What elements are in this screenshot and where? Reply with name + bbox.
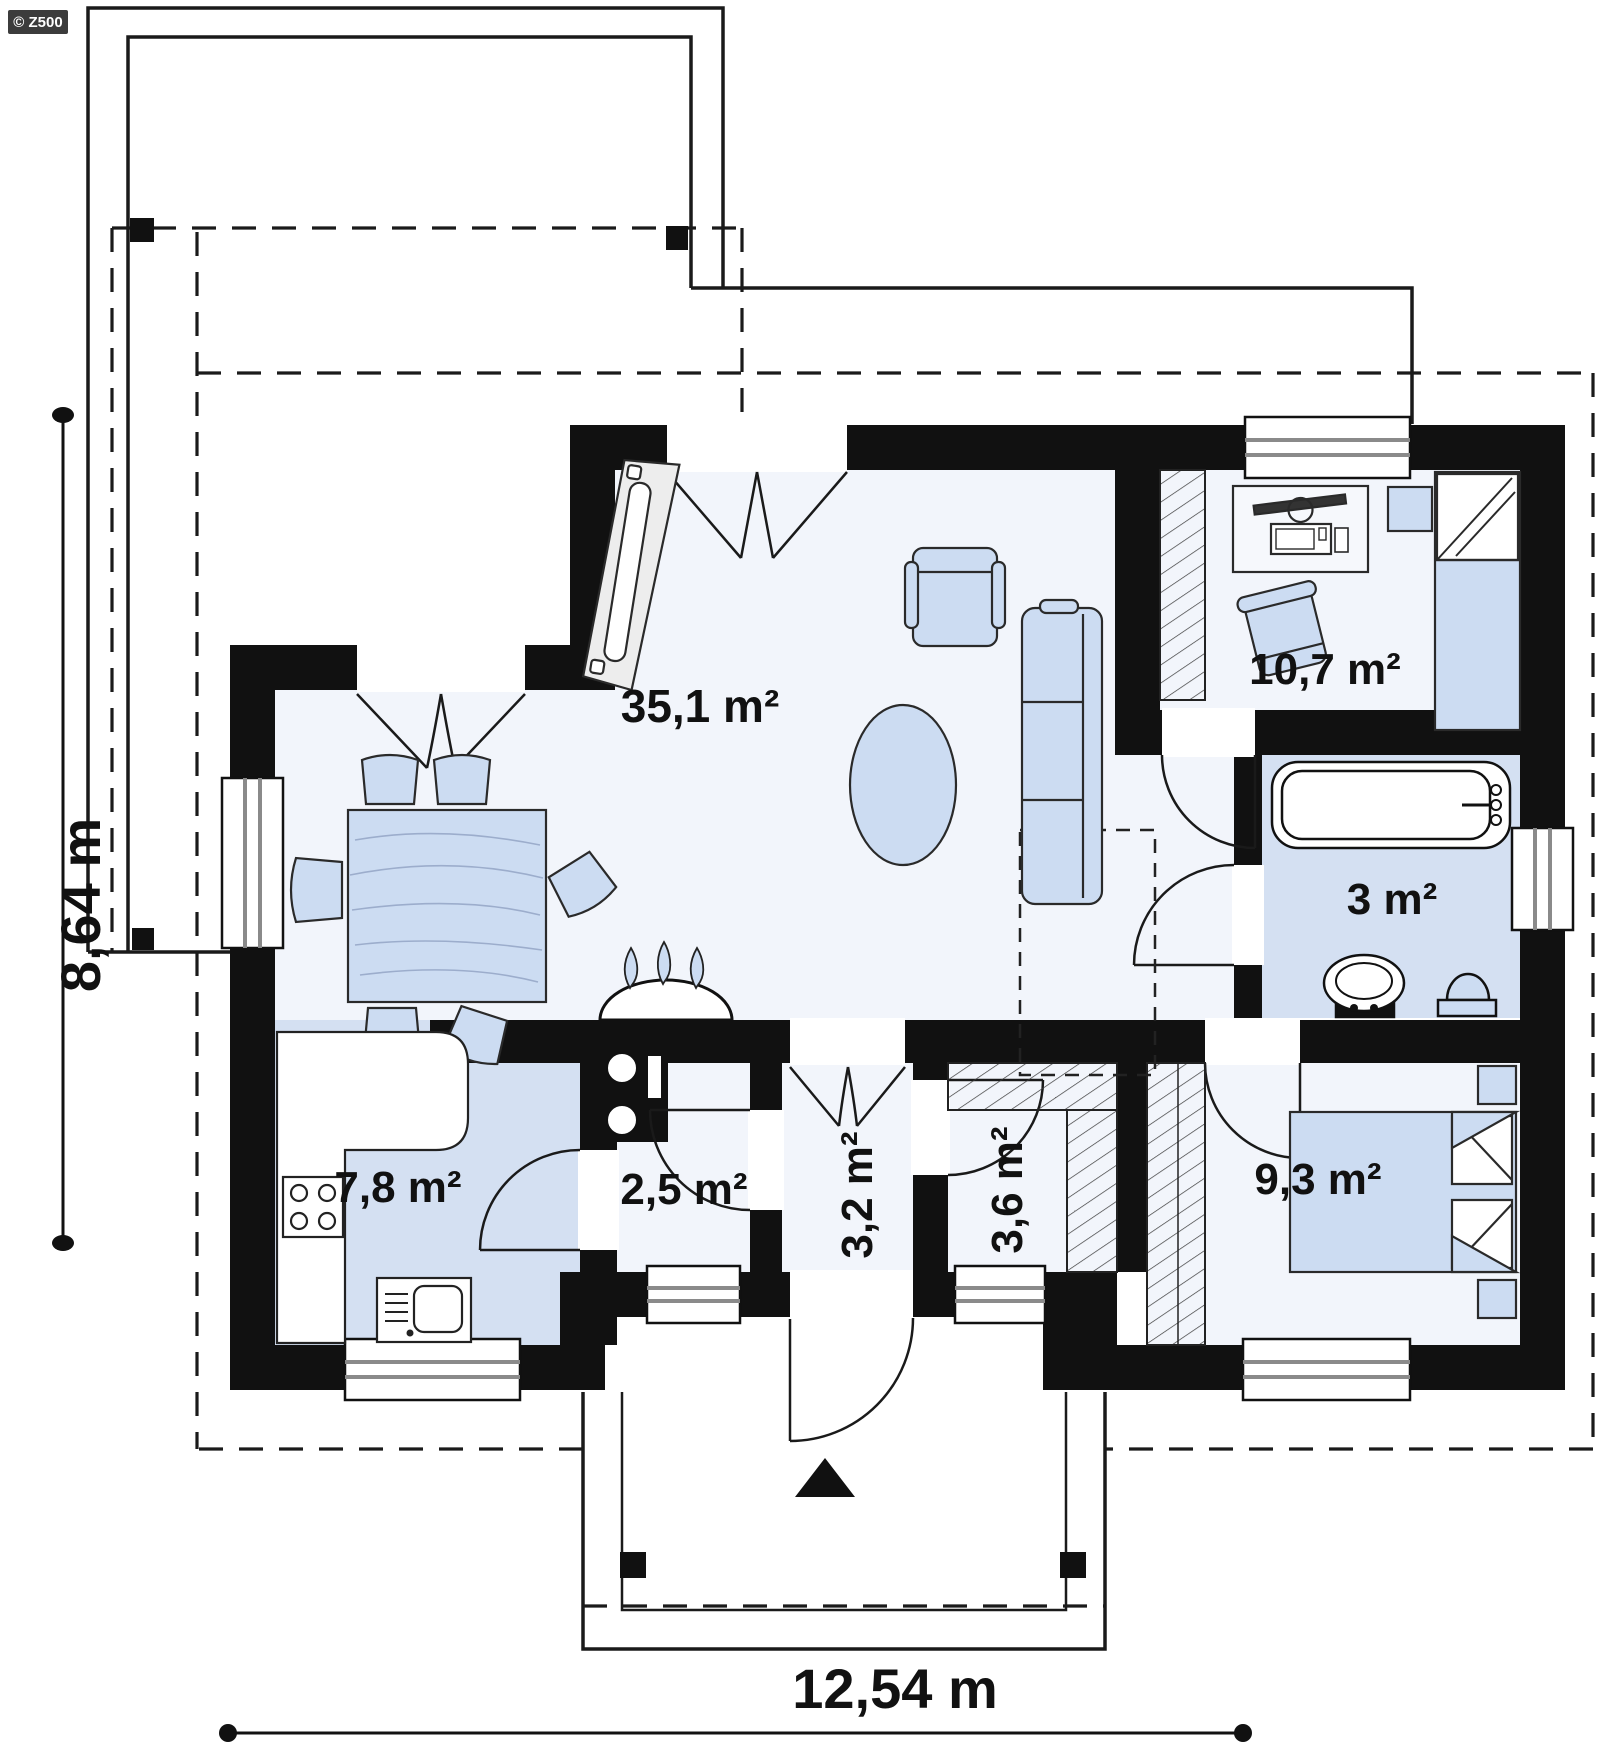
closet-wardrobe-right xyxy=(1067,1110,1117,1272)
chair xyxy=(291,858,342,922)
desk xyxy=(1233,486,1368,572)
closet-bedroom-top xyxy=(1160,470,1205,700)
dimension-vertical: 8,64 m xyxy=(49,407,112,1251)
closet-wardrobe-top xyxy=(948,1063,1117,1110)
nightstand xyxy=(1478,1280,1516,1318)
column-icon xyxy=(666,226,688,250)
column-icon xyxy=(132,928,154,950)
sink-icon xyxy=(1324,955,1404,1017)
bedroom-top-label: 10,7 m² xyxy=(1249,645,1401,694)
armchair xyxy=(905,548,1005,646)
nightstand xyxy=(1478,1066,1516,1104)
nightstand xyxy=(1388,487,1432,531)
window-kitchen-bottom xyxy=(345,1339,520,1400)
utility-label: 2,5 m² xyxy=(620,1165,747,1214)
bathtub-icon xyxy=(1272,762,1510,848)
bathroom-label: 3 m² xyxy=(1347,875,1437,924)
floor-plan-svg: 35,1 m² 10,7 m² 3 m² 7,8 m² 2,5 m² 3,2 m… xyxy=(0,0,1600,1746)
window-utility-bottom xyxy=(647,1266,740,1323)
hallway-label: 3,2 m² xyxy=(833,1131,882,1258)
window-dining-left xyxy=(222,778,283,948)
entrance-arrow-icon xyxy=(795,1458,855,1497)
column-icon xyxy=(130,218,154,242)
coffee-table xyxy=(850,705,956,865)
window-bedroom-top xyxy=(1245,417,1410,478)
sofa xyxy=(1022,600,1102,904)
closet-bedroom-bottom xyxy=(1147,1063,1205,1345)
wardrobe-label: 3,6 m² xyxy=(983,1126,1032,1253)
chair xyxy=(362,755,418,804)
kitchen-sink-icon xyxy=(377,1278,471,1342)
window-bedroom-bottom xyxy=(1243,1339,1410,1400)
window-bathroom-right xyxy=(1512,828,1573,930)
porch xyxy=(620,1458,1086,1578)
porch-column-icon xyxy=(1060,1552,1086,1578)
logo-text: © Z500 xyxy=(13,14,62,31)
bedroom-bottom-label: 9,3 m² xyxy=(1254,1155,1381,1204)
porch-column-icon xyxy=(620,1552,646,1578)
mouse-icon xyxy=(1335,528,1348,552)
single-bed xyxy=(1435,472,1520,730)
height-dimension-label: 8,64 m xyxy=(49,818,112,992)
dining-table xyxy=(348,810,546,1002)
wall-wardrobe-bedroom xyxy=(1117,1020,1147,1272)
window-wardrobe-bottom xyxy=(955,1266,1045,1323)
dimension-horizontal: 12,54 m xyxy=(219,1657,1252,1742)
logo-badge: © Z500 xyxy=(8,10,68,34)
entrance-door xyxy=(790,1318,913,1441)
width-dimension-label: 12,54 m xyxy=(792,1657,998,1720)
kitchen-label: 7,8 m² xyxy=(334,1163,461,1212)
wall-left xyxy=(230,645,275,1390)
chair xyxy=(434,755,490,804)
floor-plan-page: 35,1 m² 10,7 m² 3 m² 7,8 m² 2,5 m² 3,2 m… xyxy=(0,0,1600,1746)
porch-inner-outline xyxy=(622,1392,1066,1610)
wall-living-bedroom xyxy=(1115,425,1160,735)
living-label: 35,1 m² xyxy=(621,680,780,732)
